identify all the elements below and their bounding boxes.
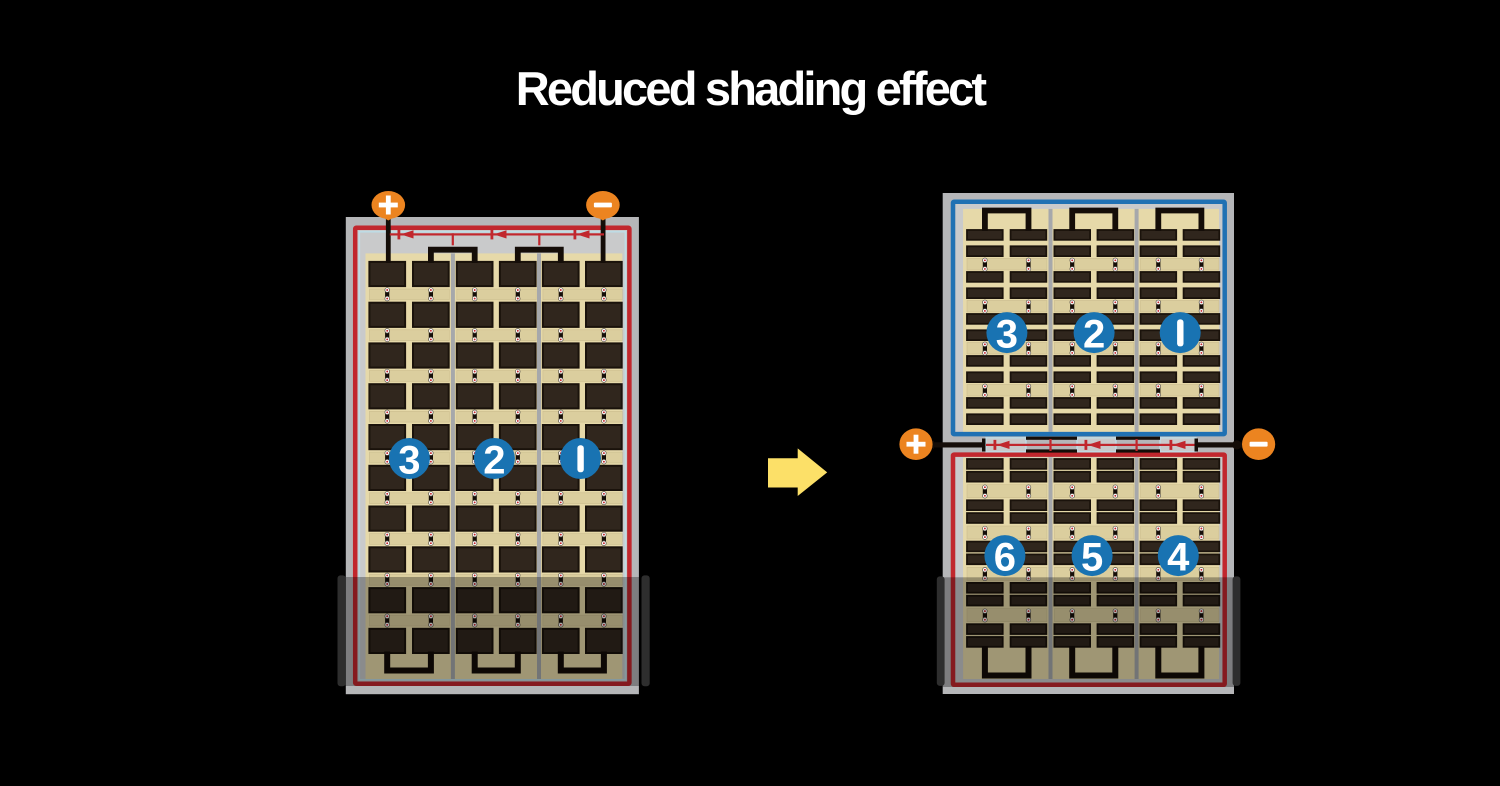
svg-text:6: 6 (994, 535, 1016, 579)
svg-text:4: 4 (1167, 535, 1190, 579)
svg-text:5: 5 (1081, 535, 1103, 579)
svg-text:2: 2 (1083, 312, 1105, 356)
svg-text:3: 3 (398, 438, 420, 482)
svg-text:Reduced shading effect: Reduced shading effect (516, 62, 988, 115)
svg-text:3: 3 (996, 312, 1018, 356)
svg-text:2: 2 (483, 438, 505, 482)
